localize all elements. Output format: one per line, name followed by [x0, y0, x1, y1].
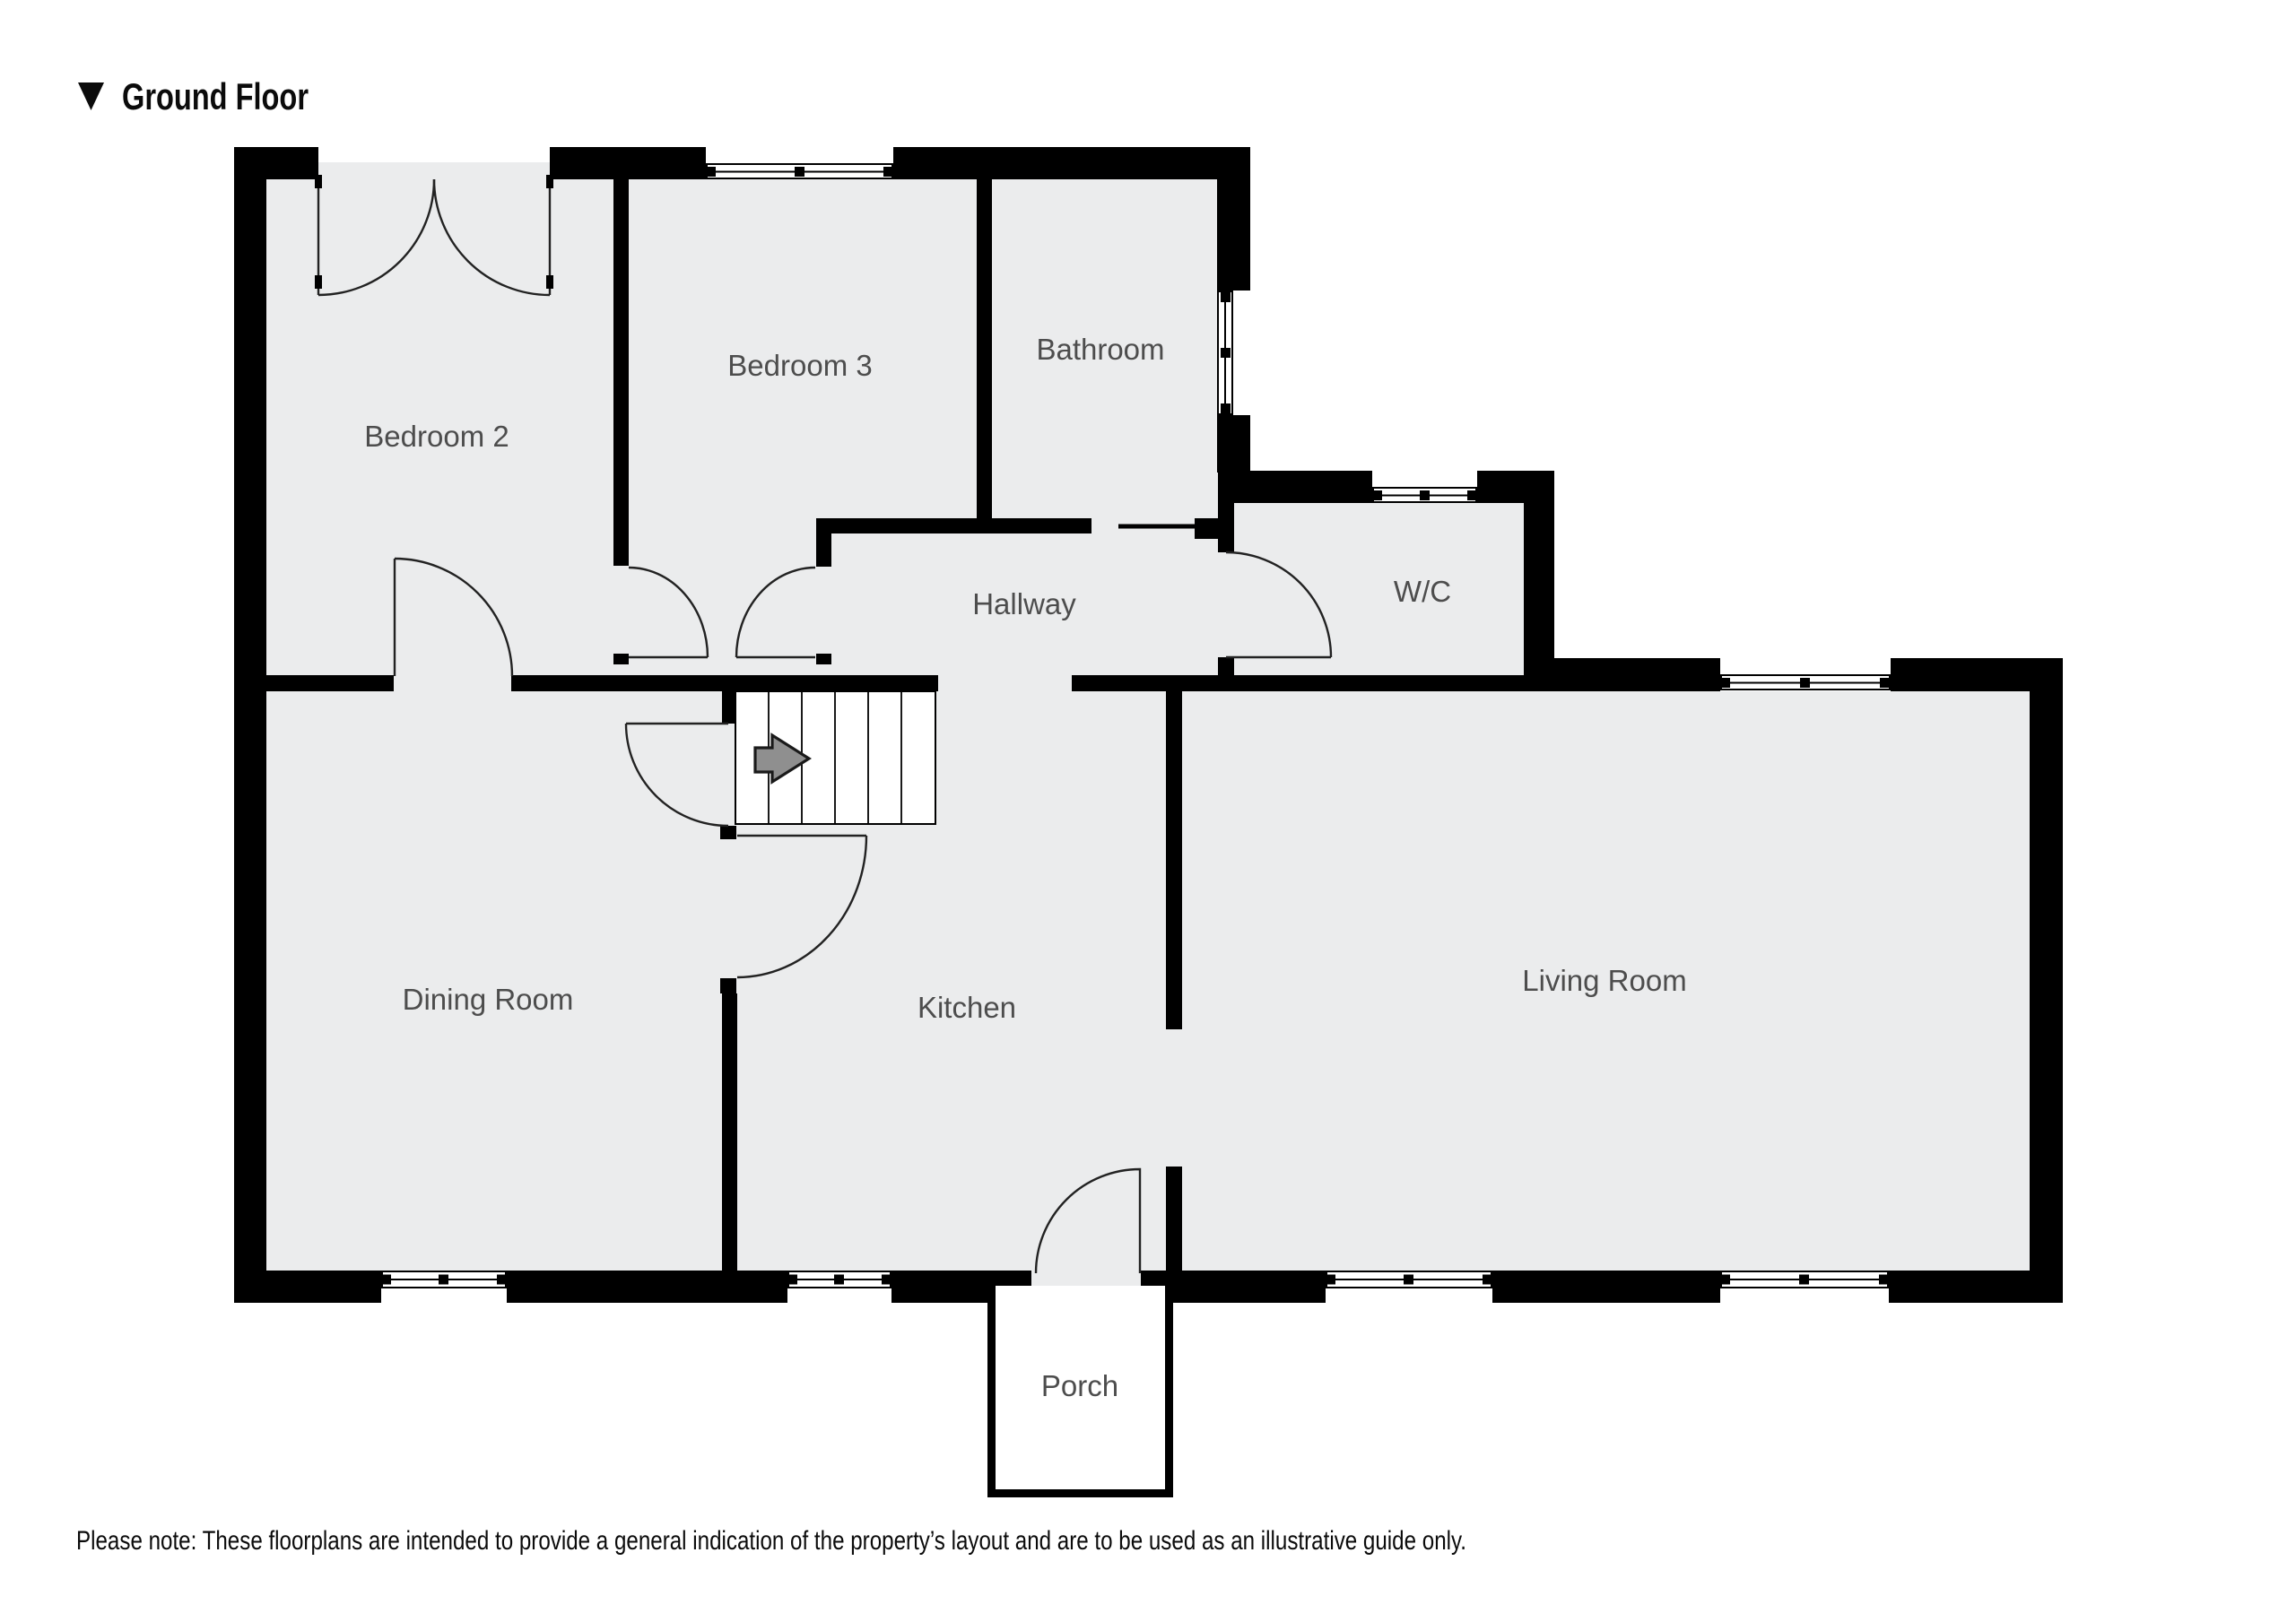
svg-text:Bedroom 2: Bedroom 2 — [364, 420, 509, 453]
svg-text:Bedroom 3: Bedroom 3 — [727, 349, 872, 382]
svg-text:Hallway: Hallway — [972, 587, 1076, 620]
svg-text:Bathroom: Bathroom — [1036, 333, 1164, 366]
svg-text:Living Room: Living Room — [1522, 964, 1686, 997]
svg-text:Please note: These floorplans: Please note: These floorplans are intend… — [76, 1526, 1466, 1556]
svg-text:W/C: W/C — [1394, 575, 1451, 608]
svg-text:Dining Room: Dining Room — [403, 983, 574, 1016]
svg-text:Ground Floor: Ground Floor — [122, 75, 309, 117]
svg-text:Porch: Porch — [1041, 1369, 1118, 1402]
svg-text:Kitchen: Kitchen — [918, 991, 1016, 1024]
